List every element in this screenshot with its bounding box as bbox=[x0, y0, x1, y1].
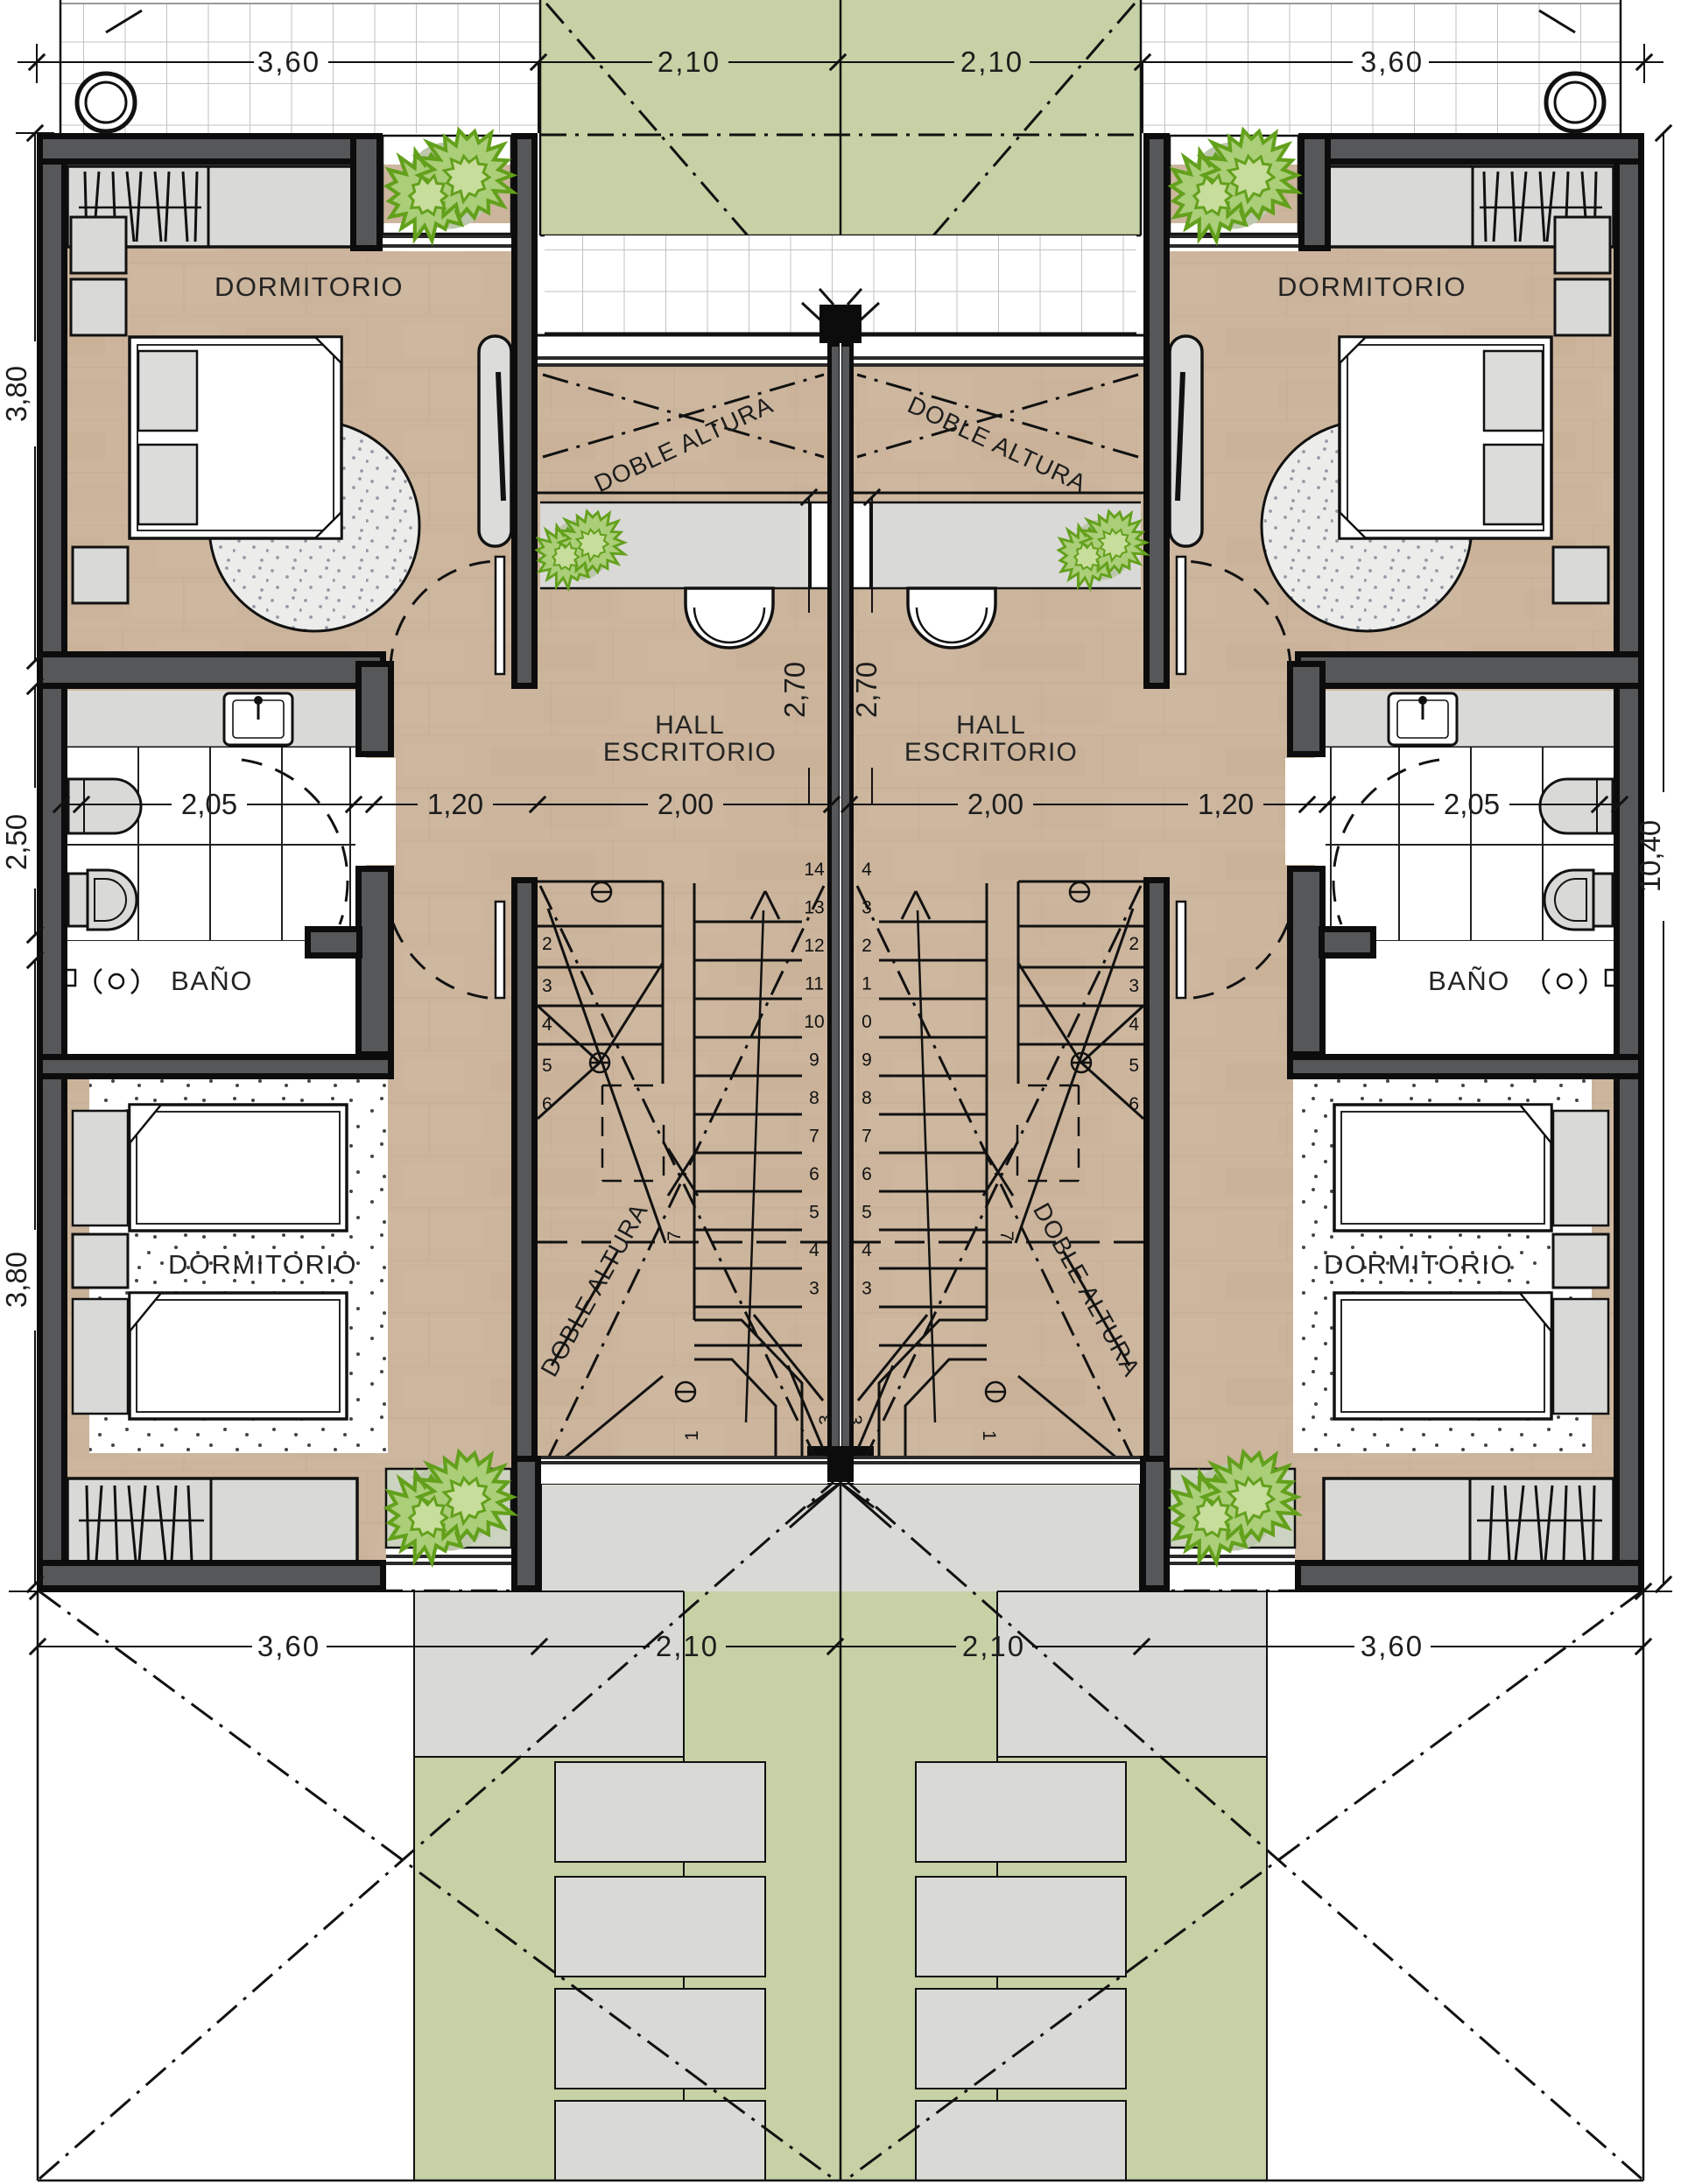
svg-text:2,10: 2,10 bbox=[656, 1630, 719, 1662]
svg-text:2,00: 2,00 bbox=[658, 788, 714, 820]
svg-text:4: 4 bbox=[809, 1240, 819, 1261]
svg-text:6: 6 bbox=[809, 1164, 819, 1184]
svg-text:7: 7 bbox=[996, 1231, 1016, 1241]
svg-text:ESCRITORIO: ESCRITORIO bbox=[904, 738, 1078, 767]
svg-text:1,20: 1,20 bbox=[427, 788, 483, 820]
svg-text:7: 7 bbox=[665, 1231, 685, 1241]
svg-text:8: 8 bbox=[809, 1088, 819, 1108]
svg-text:DORMITORIO: DORMITORIO bbox=[215, 271, 404, 302]
svg-text:DORMITORIO: DORMITORIO bbox=[168, 1249, 357, 1280]
svg-text:5: 5 bbox=[862, 1203, 872, 1223]
svg-text:3: 3 bbox=[845, 1415, 865, 1425]
svg-text:3: 3 bbox=[1129, 976, 1139, 996]
svg-text:HALL: HALL bbox=[655, 711, 725, 740]
svg-text:2: 2 bbox=[862, 936, 872, 956]
svg-text:1,20: 1,20 bbox=[1198, 788, 1254, 820]
svg-text:2: 2 bbox=[1129, 934, 1139, 954]
svg-text:2,05: 2,05 bbox=[181, 788, 237, 820]
svg-text:3,60: 3,60 bbox=[257, 1630, 320, 1662]
svg-text:2,10: 2,10 bbox=[960, 46, 1023, 78]
svg-text:6: 6 bbox=[862, 1164, 872, 1184]
svg-text:HALL: HALL bbox=[956, 711, 1026, 740]
svg-text:3,60: 3,60 bbox=[1361, 1630, 1424, 1662]
svg-text:3,80: 3,80 bbox=[0, 366, 32, 422]
svg-text:4: 4 bbox=[862, 860, 872, 880]
svg-text:1: 1 bbox=[979, 1430, 999, 1441]
svg-text:9: 9 bbox=[809, 1050, 819, 1071]
svg-text:14: 14 bbox=[804, 860, 825, 880]
svg-text:5: 5 bbox=[809, 1203, 819, 1223]
svg-text:3: 3 bbox=[816, 1415, 836, 1425]
svg-text:DORMITORIO: DORMITORIO bbox=[1324, 1249, 1513, 1280]
svg-text:2,00: 2,00 bbox=[967, 788, 1023, 820]
svg-text:2,70: 2,70 bbox=[778, 662, 811, 718]
svg-text:BAÑO: BAÑO bbox=[171, 966, 253, 996]
svg-text:2,05: 2,05 bbox=[1444, 788, 1500, 820]
svg-text:2: 2 bbox=[542, 934, 552, 954]
svg-text:2,70: 2,70 bbox=[850, 662, 883, 718]
svg-text:3: 3 bbox=[862, 1279, 872, 1299]
svg-text:3,60: 3,60 bbox=[1361, 46, 1424, 78]
svg-text:8: 8 bbox=[862, 1088, 872, 1108]
svg-text:3: 3 bbox=[542, 976, 552, 996]
svg-text:1: 1 bbox=[862, 974, 872, 994]
svg-text:10,40: 10,40 bbox=[1634, 820, 1666, 893]
svg-text:9: 9 bbox=[862, 1050, 872, 1071]
svg-text:12: 12 bbox=[804, 936, 824, 956]
svg-text:3,80: 3,80 bbox=[0, 1252, 32, 1308]
svg-text:7: 7 bbox=[862, 1127, 872, 1147]
svg-text:BAÑO: BAÑO bbox=[1428, 966, 1510, 996]
svg-text:1: 1 bbox=[682, 1430, 702, 1441]
svg-text:10: 10 bbox=[804, 1012, 824, 1032]
svg-text:4: 4 bbox=[862, 1240, 872, 1261]
svg-text:DORMITORIO: DORMITORIO bbox=[1277, 271, 1466, 302]
svg-text:2,10: 2,10 bbox=[658, 46, 721, 78]
svg-text:3: 3 bbox=[809, 1279, 819, 1299]
svg-text:5: 5 bbox=[1129, 1056, 1139, 1076]
svg-text:2,50: 2,50 bbox=[0, 814, 32, 870]
svg-text:3,60: 3,60 bbox=[257, 46, 320, 78]
svg-text:7: 7 bbox=[809, 1127, 819, 1147]
svg-text:ESCRITORIO: ESCRITORIO bbox=[603, 738, 777, 767]
svg-text:2,10: 2,10 bbox=[962, 1630, 1025, 1662]
svg-text:5: 5 bbox=[542, 1056, 552, 1076]
svg-text:0: 0 bbox=[862, 1012, 872, 1032]
svg-text:11: 11 bbox=[805, 974, 824, 994]
